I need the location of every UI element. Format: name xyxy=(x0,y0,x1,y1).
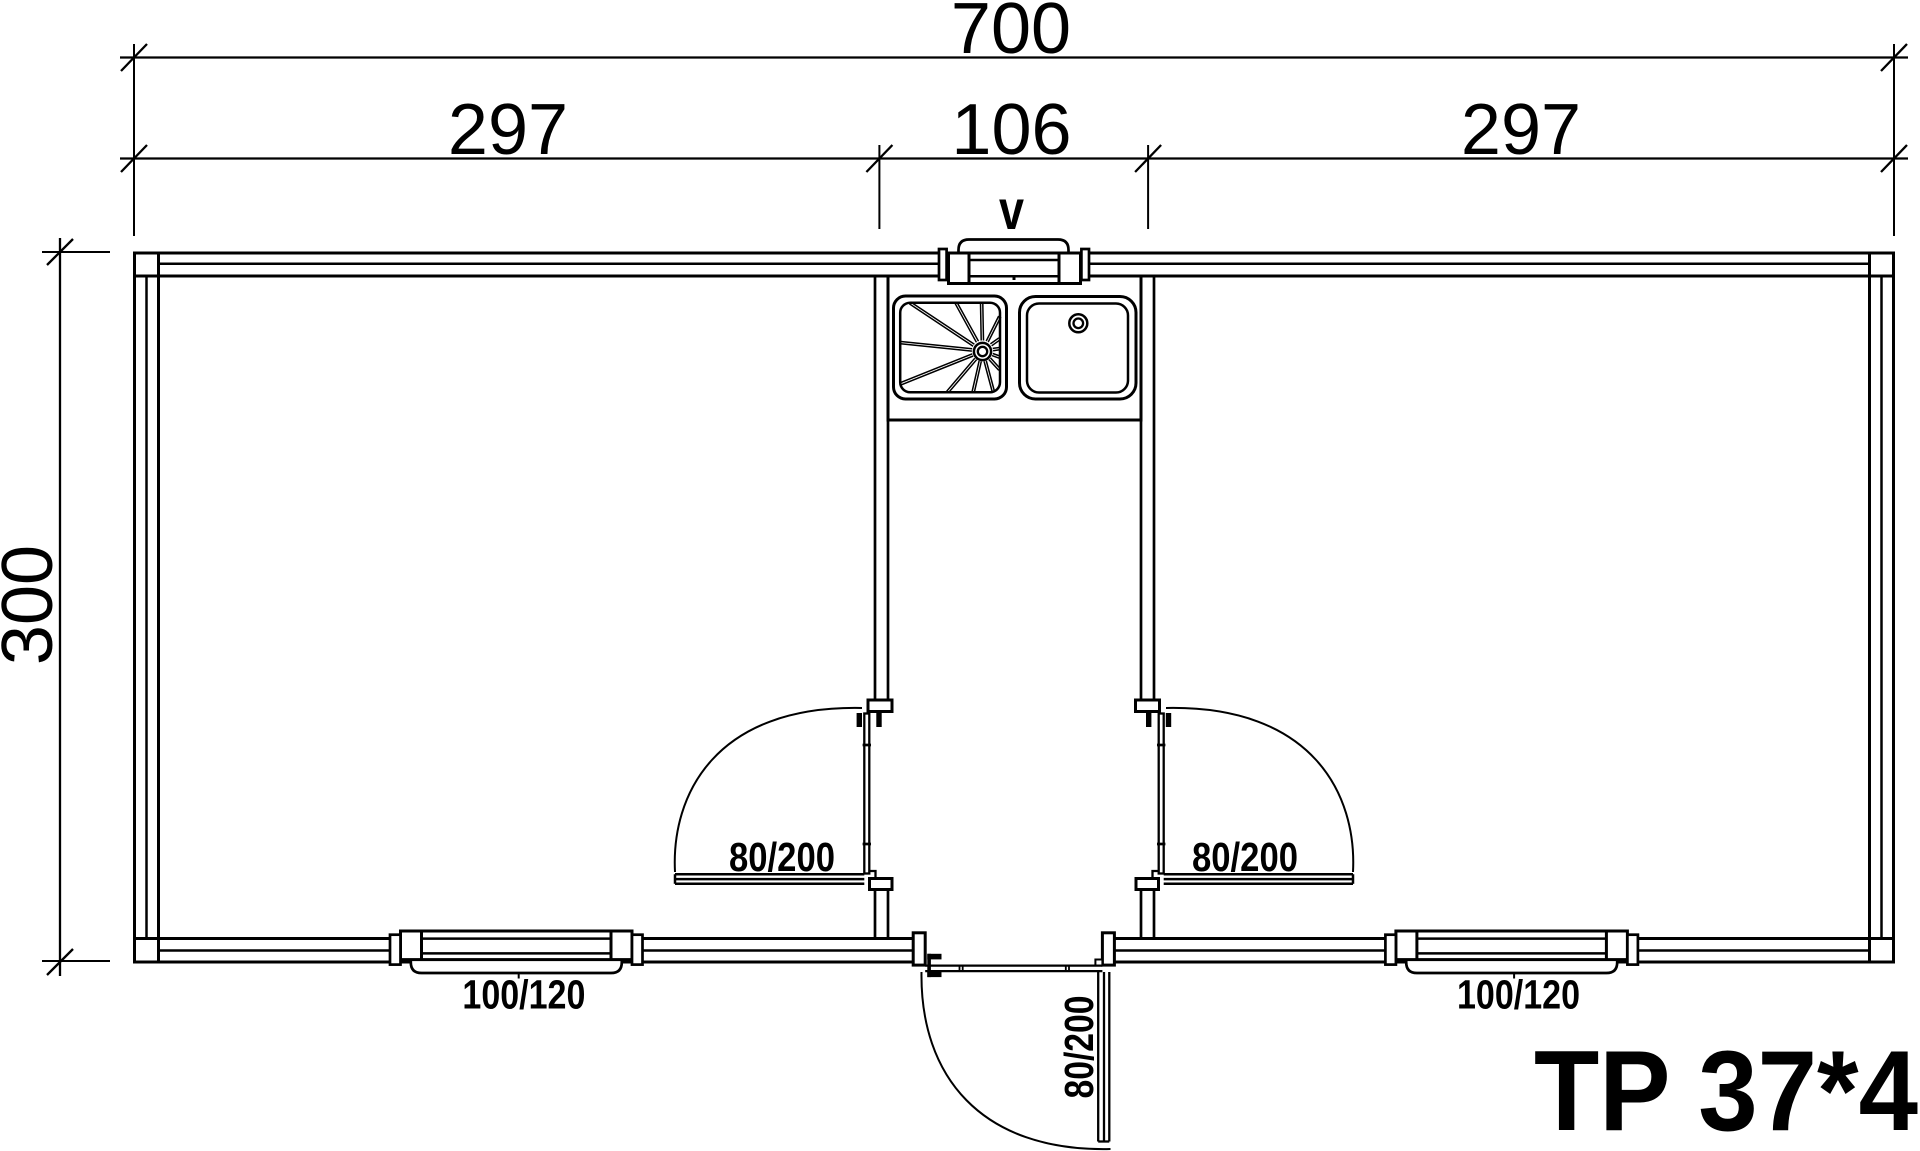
svg-text:v: v xyxy=(999,178,1024,241)
svg-text:80/200: 80/200 xyxy=(729,834,835,880)
svg-text:700: 700 xyxy=(951,0,1071,69)
svg-text:300: 300 xyxy=(0,545,68,665)
svg-text:80/200: 80/200 xyxy=(1056,996,1102,1099)
svg-text:100/120: 100/120 xyxy=(462,972,585,1018)
svg-text:297: 297 xyxy=(1461,90,1581,170)
svg-text:TP 37*4: TP 37*4 xyxy=(1534,1028,1918,1151)
svg-text:297: 297 xyxy=(448,90,568,170)
svg-text:100/120: 100/120 xyxy=(1457,972,1580,1018)
svg-text:106: 106 xyxy=(951,90,1071,170)
svg-text:80/200: 80/200 xyxy=(1192,834,1298,880)
